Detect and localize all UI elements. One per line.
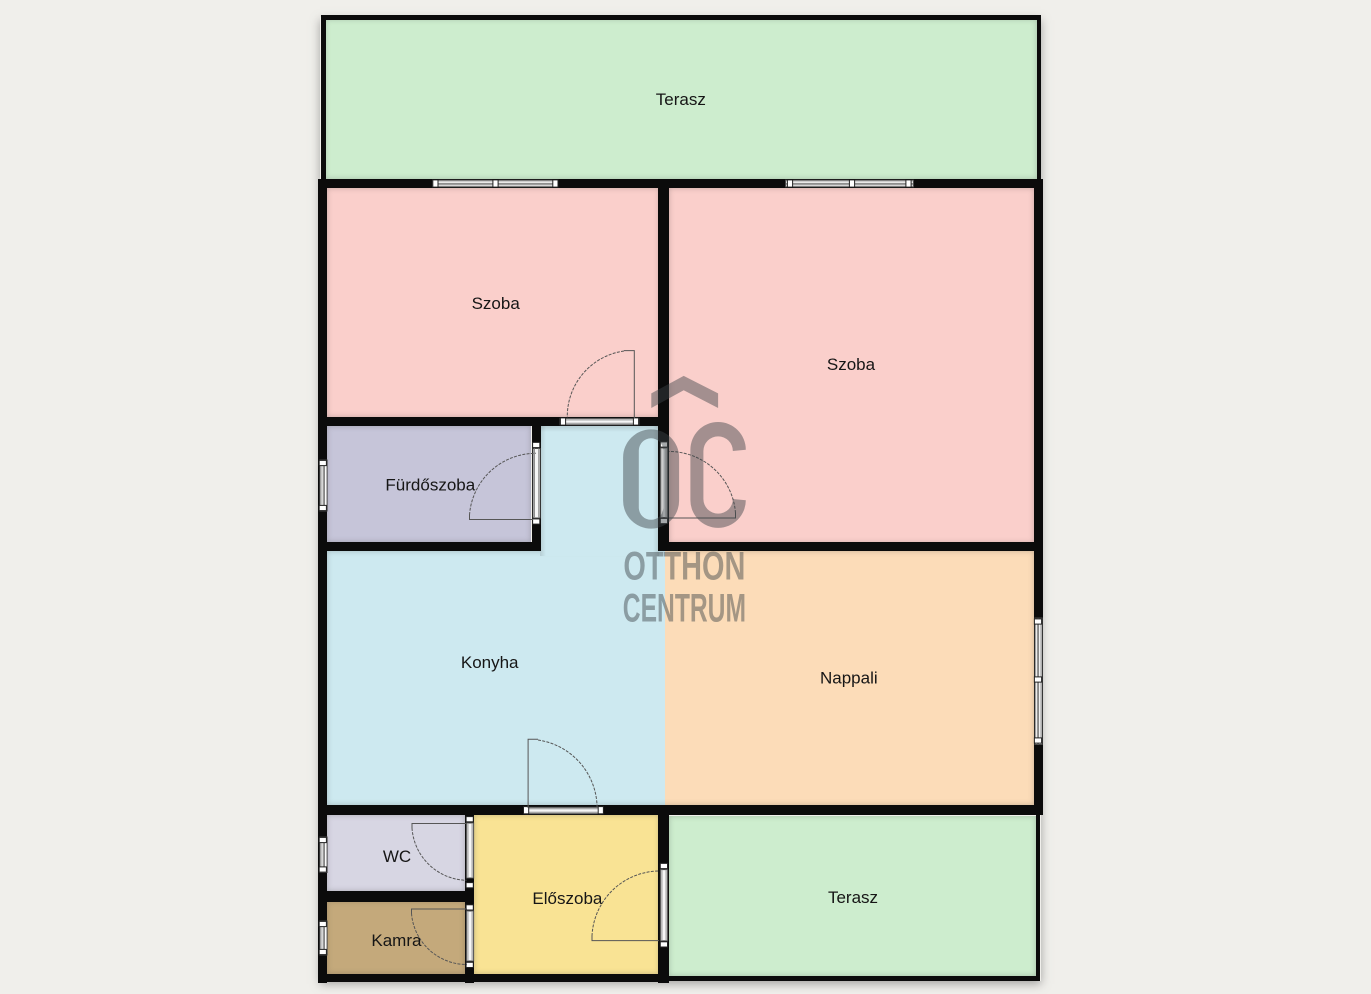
svg-text:Fürdőszoba: Fürdőszoba: [385, 475, 475, 494]
svg-text:Kamra: Kamra: [371, 931, 422, 950]
svg-text:CENTRUM: CENTRUM: [623, 587, 746, 631]
svg-text:OTTHON: OTTHON: [623, 545, 745, 589]
svg-text:Előszoba: Előszoba: [532, 889, 602, 908]
svg-text:Nappali: Nappali: [820, 669, 878, 688]
svg-text:WC: WC: [383, 847, 411, 866]
svg-text:Szoba: Szoba: [827, 355, 876, 374]
svg-text:Szoba: Szoba: [472, 294, 521, 313]
svg-text:Terasz: Terasz: [828, 888, 878, 907]
svg-text:Terasz: Terasz: [656, 90, 706, 109]
svg-text:Konyha: Konyha: [461, 653, 519, 672]
